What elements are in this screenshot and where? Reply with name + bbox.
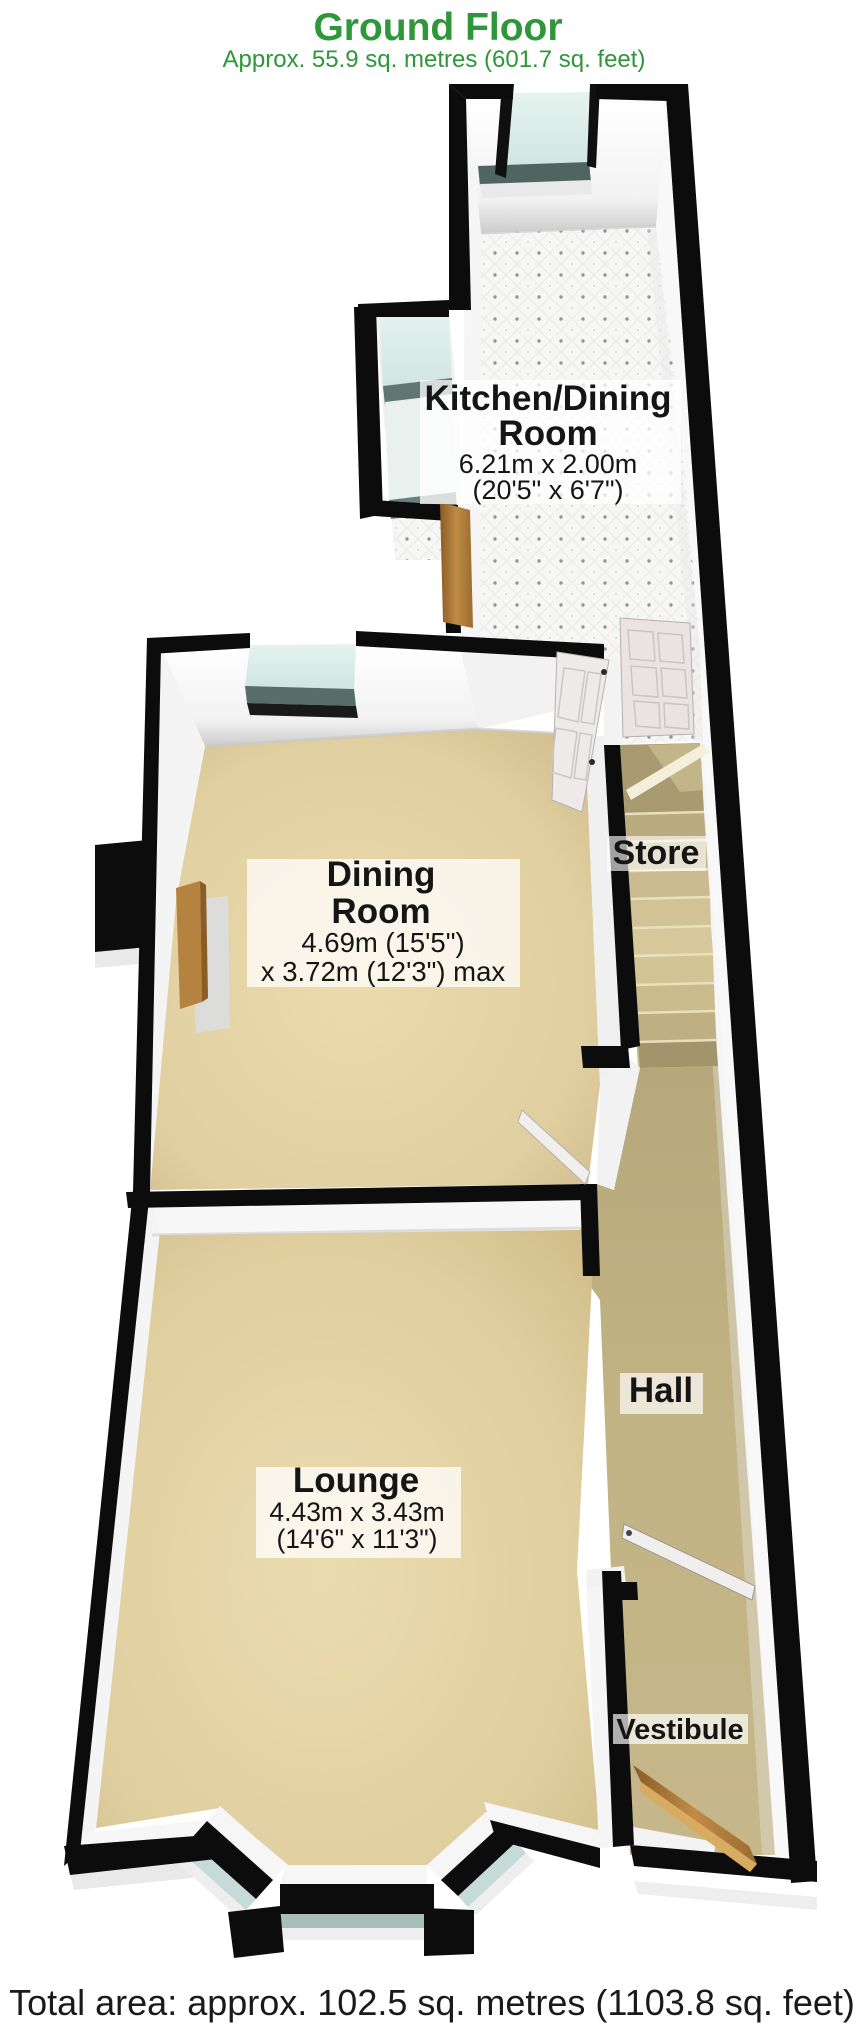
- svg-text:Ground Floor: Ground Floor: [313, 6, 562, 49]
- svg-text:Approx. 55.9 sq. metres (601.7: Approx. 55.9 sq. metres (601.7 sq. feet): [223, 46, 646, 73]
- svg-text:Store: Store: [613, 834, 700, 872]
- svg-text:Dining: Dining: [327, 855, 436, 894]
- svg-text:4.69m (15'5"): 4.69m (15'5"): [301, 927, 464, 958]
- svg-text:(14'6" x 11'3"): (14'6" x 11'3"): [276, 1524, 437, 1554]
- svg-text:Room: Room: [498, 414, 597, 453]
- svg-text:Kitchen/Dining: Kitchen/Dining: [425, 379, 672, 418]
- svg-text:(20'5" x 6'7"): (20'5" x 6'7"): [472, 475, 623, 505]
- svg-text:x 3.72m (12'3") max: x 3.72m (12'3") max: [261, 956, 506, 987]
- svg-text:Vestibule: Vestibule: [616, 1714, 743, 1746]
- svg-text:Hall: Hall: [629, 1371, 693, 1410]
- svg-text:Room: Room: [331, 892, 430, 931]
- svg-text:Lounge: Lounge: [293, 1461, 419, 1500]
- svg-text:Total area: approx. 102.5 sq.: Total area: approx. 102.5 sq. metres (11…: [9, 1982, 855, 2023]
- svg-text:4.43m x 3.43m: 4.43m x 3.43m: [269, 1497, 444, 1527]
